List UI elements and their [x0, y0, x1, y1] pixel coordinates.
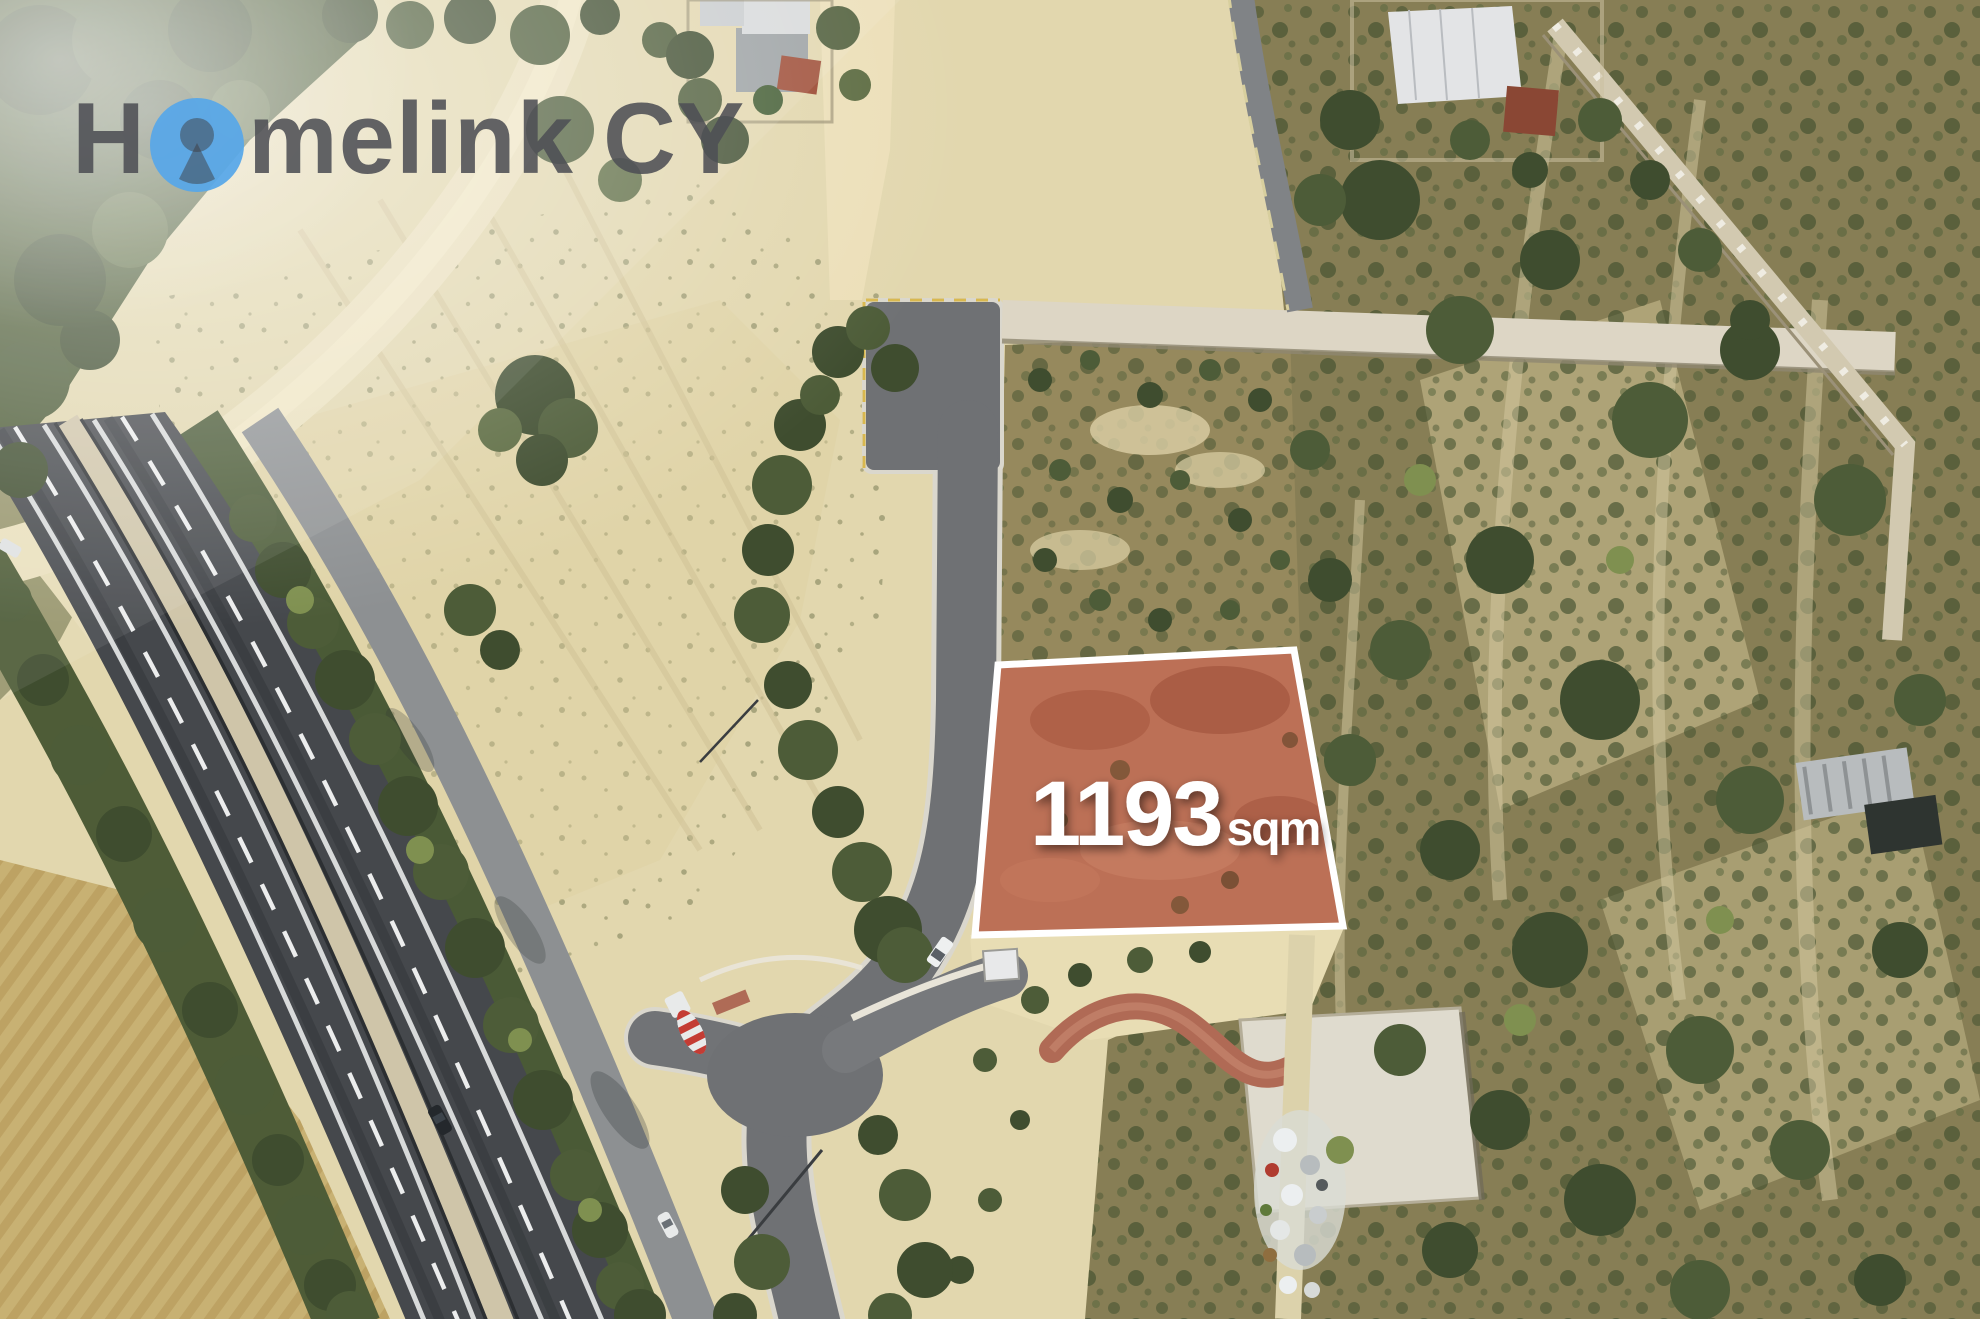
watermark-text-prefix: H: [72, 82, 146, 197]
tiled-roof-building: [1503, 86, 1559, 136]
pit: [1864, 795, 1942, 855]
keyhole-icon: [149, 97, 245, 193]
watermark-text-suffix: melink CY: [248, 82, 745, 197]
homelink-watermark: H melink CY: [72, 82, 745, 197]
aerial-photo: 1193sqm: [0, 0, 1980, 1319]
plot-highlight: 1193sqm: [975, 650, 1343, 935]
aerial-listing-image: 1193sqm: [0, 0, 1980, 1319]
red-debris: [1265, 1163, 1279, 1177]
small-shed: [983, 949, 1019, 981]
white-roof-building: [1388, 6, 1522, 104]
